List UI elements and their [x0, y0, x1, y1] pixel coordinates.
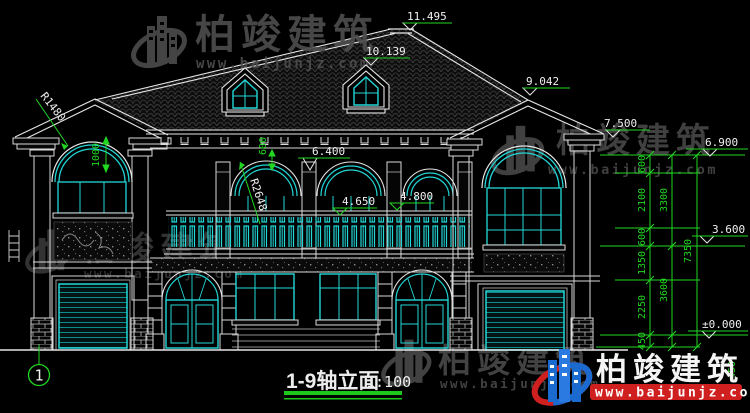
watermark-top: 柏竣建筑 www.baijunjz.com	[128, 13, 379, 73]
elev-ground-label: ±0.000	[702, 318, 742, 331]
dim-3300: 3300	[659, 188, 670, 212]
elev-eave-label: 6.900	[705, 136, 738, 149]
arch-rise-label: 1000	[91, 143, 102, 167]
cad-canvas: 柏竣建筑 www.baijunjz.com 柏竣建筑 www.baijunjz.…	[0, 0, 750, 413]
dim-600b: 600	[637, 228, 648, 246]
elev-second-floor: 3.600	[692, 223, 748, 243]
brand-url: www.baijunjz.com	[595, 386, 750, 401]
downspout-ladder	[9, 230, 19, 262]
right-floor-band	[450, 276, 600, 281]
rustication-lines	[232, 329, 380, 347]
right-garage-door	[486, 291, 564, 350]
ground-window-left	[232, 274, 298, 325]
dentil-band	[150, 137, 470, 145]
dim-1350: 1350	[637, 251, 648, 275]
elev-dormer-label: 10.139	[366, 45, 406, 58]
drawing-scale: 1:100	[366, 373, 411, 391]
left-window-sill	[53, 213, 133, 218]
dim-3600: 3600	[659, 278, 670, 302]
center-block	[146, 130, 474, 350]
elevation-drawing: 柏竣建筑 www.baijunjz.com 柏竣建筑 www.baijunjz.…	[0, 0, 750, 413]
title-underline-thick	[284, 391, 402, 395]
elev-ridge: 11.495	[403, 10, 452, 30]
elev-right-eave-label: 7.500	[604, 117, 637, 130]
elev-center-eave-label: 6.400	[312, 145, 345, 158]
dim-2250: 2250	[637, 295, 648, 319]
elev-balcony: 4.650	[333, 195, 377, 215]
ground-window-right	[316, 274, 380, 325]
axis-bubble-number: 1	[34, 367, 43, 385]
left-wing	[9, 99, 171, 350]
left-garage-door	[59, 284, 127, 348]
right-window-sill	[483, 245, 565, 250]
elev-balcony-label: 4.650	[342, 195, 375, 208]
watermark-top-url: www.baijunjz.com	[196, 56, 371, 72]
elev-right-gable-label: 9.042	[526, 75, 559, 88]
balcony-balusters	[168, 217, 470, 247]
left-pilaster-brick-base	[31, 318, 53, 350]
right-carved-panel	[484, 254, 564, 272]
dim-600a: 600	[637, 155, 648, 173]
watermark-top-brand: 柏竣建筑	[195, 13, 379, 57]
dim-2100: 2100	[637, 188, 648, 212]
dim-450a: 450	[637, 332, 648, 350]
title-block: 1-9轴立面 1:100	[284, 369, 411, 400]
entrance-door-left	[146, 270, 238, 350]
title-underline-thin	[284, 398, 402, 400]
elev-door-head-label: 4.800	[400, 190, 433, 203]
dim-7350: 7350	[683, 239, 694, 263]
watermark-bottom-color: 柏竣建筑 www.baijunjz.com	[529, 349, 750, 410]
elev-second-floor-label: 3.600	[712, 223, 745, 236]
brand-name: 柏竣建筑	[596, 352, 744, 387]
axis-bubble: 1	[29, 345, 50, 386]
watermark-right-logo	[488, 126, 546, 180]
elev-right-gable: 9.042	[523, 75, 570, 95]
eave-band-label: 600	[258, 137, 269, 155]
arch-rise-dim	[103, 137, 109, 172]
balcony-top-rail	[166, 211, 472, 215]
elev-ridge-label: 11.495	[407, 10, 447, 23]
eave-band-dim	[269, 150, 275, 170]
watermark-top-logo	[128, 16, 190, 73]
